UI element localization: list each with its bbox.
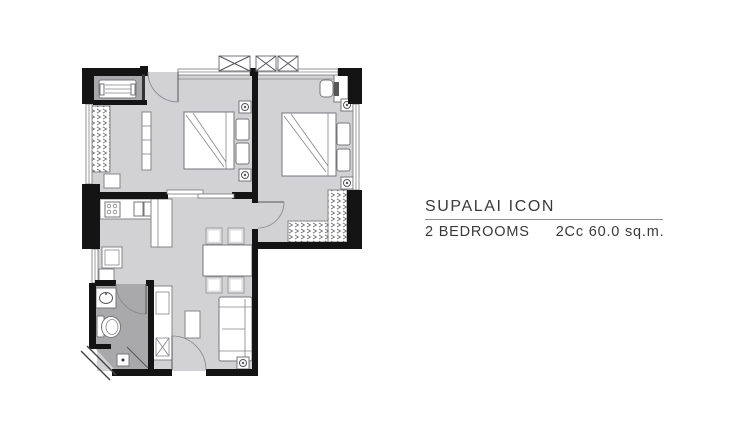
wall-segment — [252, 242, 362, 249]
divider-line — [425, 219, 663, 220]
wall-segment — [95, 280, 116, 286]
shelf-unit — [142, 112, 151, 170]
downlight-icon — [341, 177, 353, 189]
unit-code: 2Cc — [556, 224, 584, 240]
pillow — [337, 149, 350, 171]
vent-icon — [278, 56, 298, 71]
desk-chair — [320, 80, 333, 97]
unit-code-area: 2Cc 60.0 sq.m. — [556, 224, 665, 240]
vent-icon — [256, 56, 276, 71]
ac-unit-endcap — [131, 84, 135, 95]
wall-column — [82, 68, 94, 104]
dining-table — [203, 245, 252, 276]
unit-type: 2 BEDROOMS — [425, 224, 530, 240]
wall-segment — [148, 283, 154, 376]
unit-info-row: 2 BEDROOMS 2Cc 60.0 sq.m. — [425, 224, 665, 240]
wall-segment — [89, 344, 111, 349]
hanging-clothes-icon — [288, 221, 328, 242]
wall-column — [348, 68, 362, 104]
wall-segment — [206, 369, 258, 376]
ac-ledge — [99, 80, 136, 98]
wall-segment — [89, 283, 96, 344]
downlight-icon — [239, 169, 251, 181]
pillow — [236, 143, 249, 164]
wall-segment — [154, 369, 172, 376]
side-table — [185, 311, 200, 338]
wall-column — [347, 190, 362, 249]
hanging-clothes-icon — [92, 106, 110, 172]
ac-unit-endcap — [100, 84, 104, 95]
project-title: SUPALAI ICON — [425, 198, 665, 216]
wall-segment — [252, 229, 258, 376]
floor-plan-page: SUPALAI ICON 2 BEDROOMS 2Cc 60.0 sq.m. — [0, 0, 750, 444]
vent-boxes — [219, 56, 298, 71]
pillow — [337, 123, 350, 145]
downlight-icon — [239, 101, 251, 113]
tall-cabinet — [151, 199, 172, 247]
wall-segment — [94, 192, 168, 199]
hanging-clothes-icon — [328, 190, 347, 242]
unit-area: 60.0 sq.m. — [589, 224, 665, 240]
wall-segment — [232, 192, 252, 199]
pillow — [236, 119, 249, 140]
downlight-icon — [237, 357, 249, 369]
wall-segment — [252, 74, 258, 203]
nightstand — [104, 174, 120, 188]
wall-segment — [142, 74, 145, 100]
stove — [105, 202, 120, 217]
wall-segment — [112, 369, 150, 376]
desk-monitor — [334, 82, 339, 96]
bed — [184, 112, 234, 169]
vent-icon — [219, 56, 250, 71]
bedroom-2-doorway-floor — [252, 202, 260, 230]
kitchen-sink — [134, 202, 143, 216]
wall-segment — [93, 100, 147, 105]
plan-info-panel: SUPALAI ICON 2 BEDROOMS 2Cc 60.0 sq.m. — [425, 198, 665, 240]
